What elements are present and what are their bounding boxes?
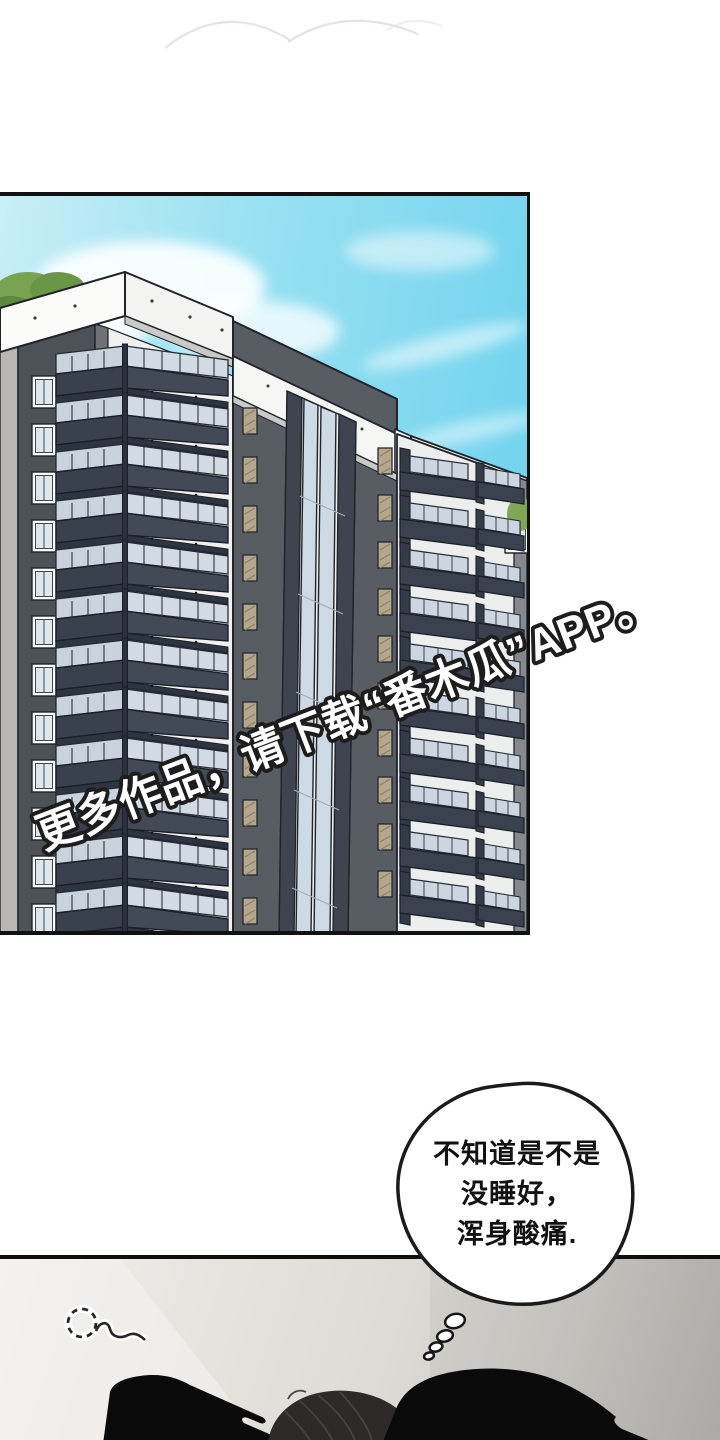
bubble-line-2: 没睡好， — [405, 1174, 629, 1214]
thought-bubble-text: 不知道是不是 没睡好， 浑身酸痛. — [405, 1134, 629, 1254]
left-tower-balconies — [56, 344, 228, 935]
comic-page: 不知道是不是 没睡好， 浑身酸痛. 更多作品，请下载“番木瓜”APP。 — [0, 0, 720, 1440]
bubble-line-3: 浑身酸痛. — [405, 1214, 629, 1254]
apartment-building-illustration — [0, 196, 527, 935]
panel-building — [0, 192, 530, 935]
cloud-doodle-icon — [150, 0, 450, 60]
bubble-line-1: 不知道是不是 — [405, 1134, 629, 1174]
